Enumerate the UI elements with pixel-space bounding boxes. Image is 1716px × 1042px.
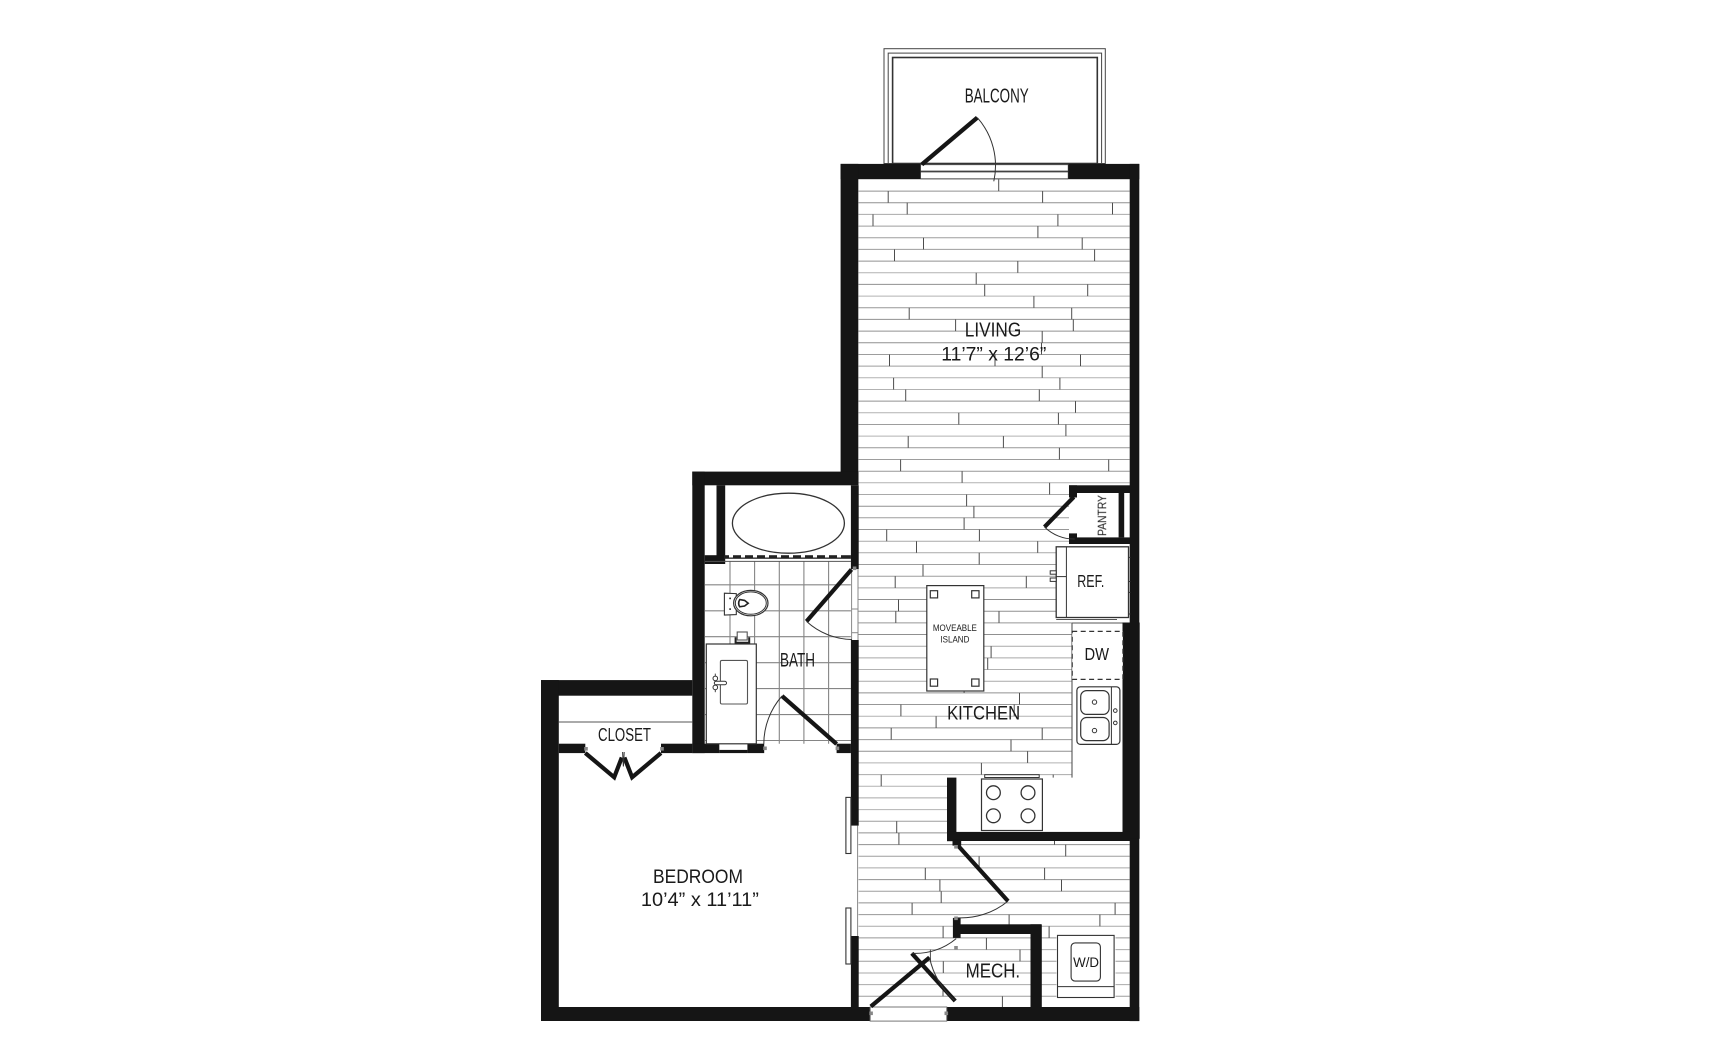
svg-text:CLOSET: CLOSET xyxy=(598,725,651,745)
svg-text:BATH: BATH xyxy=(780,650,815,671)
svg-text:10’4” x 11’11”: 10’4” x 11’11” xyxy=(641,889,759,911)
svg-text:REF.: REF. xyxy=(1077,571,1104,591)
svg-text:BEDROOM: BEDROOM xyxy=(653,866,743,888)
svg-text:LIVING: LIVING xyxy=(965,320,1022,342)
svg-text:DW: DW xyxy=(1085,644,1110,664)
svg-text:ISLAND: ISLAND xyxy=(940,635,969,645)
svg-text:MOVEABLE: MOVEABLE xyxy=(933,623,977,633)
svg-text:11’7” x 12’6”: 11’7” x 12’6” xyxy=(941,343,1046,365)
svg-text:W/D: W/D xyxy=(1073,955,1099,970)
svg-text:KITCHEN: KITCHEN xyxy=(947,703,1020,724)
svg-text:MECH.: MECH. xyxy=(966,961,1021,983)
svg-text:BALCONY: BALCONY xyxy=(965,86,1029,108)
svg-text:PANTRY: PANTRY xyxy=(1097,495,1109,536)
